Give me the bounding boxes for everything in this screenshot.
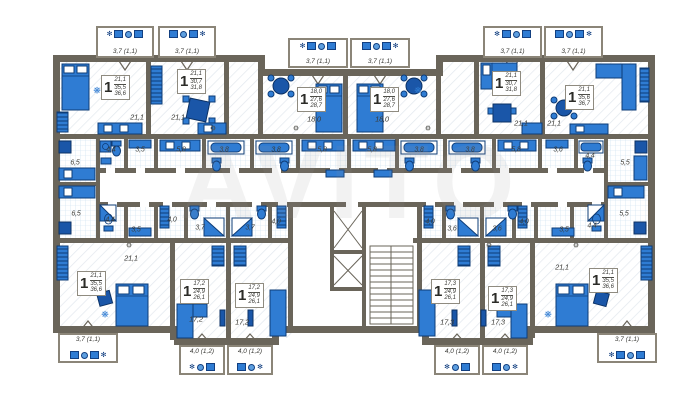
flower-pot-icon bbox=[169, 30, 178, 38]
balcony-bottom-5: 4,0 (1,2) ✻ bbox=[482, 345, 528, 375]
apartment-rooms-count: 1 bbox=[592, 273, 600, 288]
flower-pot-icon bbox=[636, 351, 645, 359]
gear-icon: ⚙ bbox=[425, 126, 431, 133]
room-area-label: 4,0 bbox=[519, 219, 528, 226]
balcony-icons: ✻ bbox=[300, 40, 337, 52]
room-area-label: 4,0 bbox=[425, 219, 434, 226]
balcony-area-label: 3,7 (1,1) bbox=[175, 48, 199, 55]
gear-icon: ⚙ bbox=[573, 243, 579, 250]
room-area-label: 21,1 bbox=[547, 120, 561, 127]
room-area-label: 3,5 bbox=[135, 147, 144, 154]
total-area: 36,7 bbox=[578, 101, 590, 108]
flower-pot-icon bbox=[180, 31, 187, 38]
room-area-label: 21,1 bbox=[555, 264, 569, 271]
flower-pot-icon bbox=[318, 43, 325, 50]
apartment-rooms-count: 1 bbox=[568, 90, 576, 105]
balcony-area-label: 3,7 (1,1) bbox=[500, 48, 524, 55]
ac-unit-icon: ✻ bbox=[609, 352, 615, 359]
balcony-area-label: 3,7 (1,1) bbox=[561, 48, 585, 55]
apartment-info-box: 121,135,536,6 bbox=[589, 268, 618, 293]
room-area-label: 17,2 bbox=[235, 319, 249, 326]
flower-pot-icon bbox=[616, 351, 625, 359]
apartment-info-box: 117,224,926,1 bbox=[235, 283, 264, 308]
flower-pot-icon bbox=[452, 364, 459, 371]
total-area: 26,1 bbox=[501, 302, 513, 309]
room-area-label: 5,5 bbox=[619, 211, 628, 218]
balcony-area-label: 3,7 (1,1) bbox=[368, 58, 392, 65]
total-area: 31,8 bbox=[190, 85, 202, 92]
total-area: 36,6 bbox=[90, 287, 102, 294]
balcony-top-left: ✻ 3,7 (1,1) bbox=[96, 26, 154, 58]
flower-pot-icon bbox=[114, 30, 123, 38]
living-area: 21,1 bbox=[578, 87, 590, 95]
total-area: 36,6 bbox=[602, 284, 614, 291]
room-area-label: 5,8 bbox=[367, 147, 376, 154]
gear-icon: ⚙ bbox=[126, 243, 132, 250]
balcony-top-right: ✻ 3,7 (1,1) bbox=[544, 26, 603, 58]
flower-pot-icon bbox=[248, 364, 255, 371]
ac-unit-icon: ✻ bbox=[200, 31, 206, 38]
living-area: 17,2 bbox=[248, 285, 260, 293]
ac-unit-icon: ✻ bbox=[300, 43, 306, 50]
room-area-label: 17,3 bbox=[440, 319, 454, 326]
flower-pot-icon bbox=[134, 30, 143, 38]
room-area-label: 3,7 bbox=[195, 225, 204, 232]
apartment-info-box: 117,224,926,1 bbox=[180, 279, 209, 304]
flower-pot-icon bbox=[307, 42, 316, 50]
balcony-icons: ✻ bbox=[555, 28, 592, 40]
apartment-info-box: 118,027,628,7 bbox=[370, 87, 399, 112]
room-area-label: 4,4 bbox=[105, 217, 114, 224]
ac-unit-icon: ✻ bbox=[444, 364, 450, 371]
room-area-label: 3,6 bbox=[553, 147, 562, 154]
balcony-icons: ✻ bbox=[494, 28, 531, 40]
room-area-label: 21,1 bbox=[130, 114, 144, 121]
ac-unit-icon: ✻ bbox=[512, 364, 518, 371]
total-area: 28,7 bbox=[383, 103, 395, 110]
total-area: 28,7 bbox=[310, 103, 322, 110]
flower-pot-icon bbox=[206, 363, 215, 371]
room-area-label: 6,5 bbox=[71, 211, 80, 218]
room-area-label: 3,8 bbox=[414, 147, 423, 154]
flower-pot-icon bbox=[382, 42, 391, 50]
balcony-icons: ✻ bbox=[444, 361, 470, 373]
room-area-label: 3,6 bbox=[492, 226, 501, 233]
balcony-bottom-4: 4,0 (1,2) ✻ bbox=[434, 345, 480, 375]
flower-pot-icon bbox=[492, 363, 501, 371]
balcony-bottom-right: 3,7 (1,1) ✻ bbox=[597, 333, 657, 363]
balcony-top-center-l: ✻ 3,7 (1,1) bbox=[288, 38, 348, 68]
balcony-icons: ✻ bbox=[362, 40, 399, 52]
flower-pot-icon bbox=[189, 30, 198, 38]
balcony-bottom-left: 3,7 (1,1) ✻ bbox=[58, 333, 118, 363]
room-area-label: 4,0 bbox=[271, 219, 280, 226]
flower-pot-icon bbox=[555, 30, 564, 38]
balcony-area-label: 3,7 (1,1) bbox=[615, 336, 639, 343]
apartment-info-box: 121,135,536,6 bbox=[77, 271, 106, 296]
room-area-label: 3,8 bbox=[219, 147, 228, 154]
room-area-label: 18,0 bbox=[375, 116, 389, 123]
room-area-label: 5,5 bbox=[620, 160, 629, 167]
flower-pot-icon bbox=[566, 31, 573, 38]
room-area-label: 17,3 bbox=[491, 319, 505, 326]
room-area-label: 18,0 bbox=[307, 116, 321, 123]
living-area: 17,3 bbox=[501, 288, 513, 296]
ac-unit-icon: ✻ bbox=[257, 364, 263, 371]
room-area-label: 3,5 bbox=[131, 227, 140, 234]
apartment-rooms-count: 1 bbox=[104, 80, 112, 95]
plant-icon: ❋ bbox=[101, 313, 109, 320]
flower-pot-icon bbox=[81, 352, 88, 359]
apartment-rooms-count: 1 bbox=[238, 288, 246, 303]
balcony-icons: ✻ bbox=[609, 349, 646, 361]
balcony-icons: ✻ bbox=[70, 349, 107, 361]
living-area: 17,2 bbox=[193, 281, 205, 289]
room-area-label: 3,8 bbox=[271, 147, 280, 154]
living-area: 18,0 bbox=[383, 89, 395, 97]
flower-pot-icon bbox=[503, 364, 510, 371]
balcony-area-label: 4,0 (1,2) bbox=[445, 348, 469, 355]
flower-pot-icon bbox=[502, 30, 511, 38]
apartment-rooms-count: 1 bbox=[180, 74, 188, 89]
apartment-rooms-count: 1 bbox=[434, 284, 442, 299]
flower-pot-icon bbox=[575, 30, 584, 38]
balcony-area-label: 4,0 (1,2) bbox=[493, 348, 517, 355]
plant-icon: ❋ bbox=[414, 89, 422, 96]
room-area-label: 4,4 bbox=[106, 147, 115, 154]
ac-unit-icon: ✻ bbox=[494, 31, 500, 38]
balcony-area-label: 3,7 (1,1) bbox=[306, 58, 330, 65]
room-area-label: 4,4 bbox=[585, 153, 594, 160]
gear-icon: ⚙ bbox=[210, 126, 216, 133]
living-area: 18,0 bbox=[310, 89, 322, 97]
total-area: 36,6 bbox=[114, 91, 126, 98]
flower-pot-icon bbox=[627, 352, 634, 359]
room-area-label: 5,8 bbox=[317, 147, 326, 154]
apartment-rooms-count: 1 bbox=[80, 276, 88, 291]
flower-pot-icon bbox=[125, 31, 132, 38]
balcony-top-5: ✻ 3,7 (1,1) bbox=[483, 26, 542, 58]
living-area: 21,1 bbox=[505, 73, 517, 81]
apartment-info-box: 117,324,926,1 bbox=[488, 286, 517, 311]
balcony-icons: ✻ bbox=[107, 28, 144, 40]
ac-unit-icon: ✻ bbox=[107, 31, 113, 38]
gear-icon: ⚙ bbox=[293, 126, 299, 133]
gear-icon: ⚙ bbox=[486, 243, 492, 250]
room-area-label: 5,8 bbox=[176, 147, 185, 154]
flower-pot-icon bbox=[522, 30, 531, 38]
room-area-label: 3,7 bbox=[245, 225, 254, 232]
balcony-icons: ✻ bbox=[189, 361, 215, 373]
ac-unit-icon: ✻ bbox=[586, 31, 592, 38]
apartment-rooms-count: 1 bbox=[495, 76, 503, 91]
apartment-rooms-count: 1 bbox=[183, 284, 191, 299]
balcony-top-center-r: ✻ 3,7 (1,1) bbox=[350, 38, 410, 68]
living-area: 21,1 bbox=[190, 71, 202, 79]
total-area: 26,1 bbox=[444, 295, 456, 302]
apartment-rooms-count: 1 bbox=[300, 92, 308, 107]
room-area-label: 3,5 bbox=[559, 227, 568, 234]
apartment-info-box: 121,130,731,8 bbox=[492, 71, 521, 96]
balcony-area-label: 4,0 (1,2) bbox=[190, 348, 214, 355]
living-area: 17,3 bbox=[444, 281, 456, 289]
room-area-label: 21,1 bbox=[514, 120, 528, 127]
living-area: 21,1 bbox=[602, 270, 614, 278]
floor-plan: .w{fill:#6a655a;} .wg{fill:#ffffff;} .f{… bbox=[0, 0, 700, 400]
room-area-label: 4,0 bbox=[167, 217, 176, 224]
balcony-top-2: ✻ 3,7 (1,1) bbox=[158, 26, 216, 58]
room-area-label: 6,5 bbox=[70, 160, 79, 167]
flower-pot-icon bbox=[197, 364, 204, 371]
flower-pot-icon bbox=[327, 42, 336, 50]
plant-icon: ❋ bbox=[93, 89, 101, 96]
apartment-info-box: 121,135,636,7 bbox=[565, 85, 594, 110]
balcony-area-label: 3,7 (1,1) bbox=[113, 48, 137, 55]
plant-icon: ❋ bbox=[544, 313, 552, 320]
apartment-info-box: 118,027,628,7 bbox=[297, 87, 326, 112]
flower-pot-icon bbox=[373, 43, 380, 50]
apartment-info-box: 117,324,926,1 bbox=[431, 279, 460, 304]
living-area: 21,1 bbox=[114, 77, 126, 85]
flower-pot-icon bbox=[70, 351, 79, 359]
ac-unit-icon: ✻ bbox=[101, 352, 107, 359]
room-area-label: 21,1 bbox=[124, 255, 138, 262]
flower-pot-icon bbox=[90, 351, 99, 359]
flower-pot-icon bbox=[461, 363, 470, 371]
flower-pot-icon bbox=[237, 363, 246, 371]
room-area-label: 3,8 bbox=[465, 147, 474, 154]
total-area: 31,8 bbox=[505, 87, 517, 94]
apartment-info-box: 121,130,731,8 bbox=[177, 69, 206, 94]
balcony-icons: ✻ bbox=[237, 361, 263, 373]
room-area-label: 21,1 bbox=[171, 114, 185, 121]
apartment-rooms-count: 1 bbox=[373, 92, 381, 107]
balcony-icons: ✻ bbox=[492, 361, 518, 373]
total-area: 26,1 bbox=[193, 295, 205, 302]
balcony-bottom-2: 4,0 (1,2) ✻ bbox=[179, 345, 225, 375]
room-area-label: 5,8 bbox=[511, 147, 520, 154]
room-area-label: 4,4 bbox=[587, 223, 596, 230]
balcony-icons: ✻ bbox=[169, 28, 206, 40]
balcony-area-label: 4,0 (1,2) bbox=[238, 348, 262, 355]
ac-unit-icon: ✻ bbox=[393, 43, 399, 50]
balcony-area-label: 3,7 (1,1) bbox=[76, 336, 100, 343]
room-area-label: 3,6 bbox=[447, 226, 456, 233]
ac-unit-icon: ✻ bbox=[189, 364, 195, 371]
room-area-label: 17,2 bbox=[189, 316, 203, 323]
balcony-bottom-3: 4,0 (1,2) ✻ bbox=[227, 345, 273, 375]
flower-pot-icon bbox=[513, 31, 520, 38]
apartment-rooms-count: 1 bbox=[491, 291, 499, 306]
total-area: 26,1 bbox=[248, 299, 260, 306]
living-area: 21,1 bbox=[90, 273, 102, 281]
apartment-info-box: 121,135,536,6 bbox=[101, 75, 130, 100]
flower-pot-icon bbox=[362, 42, 371, 50]
